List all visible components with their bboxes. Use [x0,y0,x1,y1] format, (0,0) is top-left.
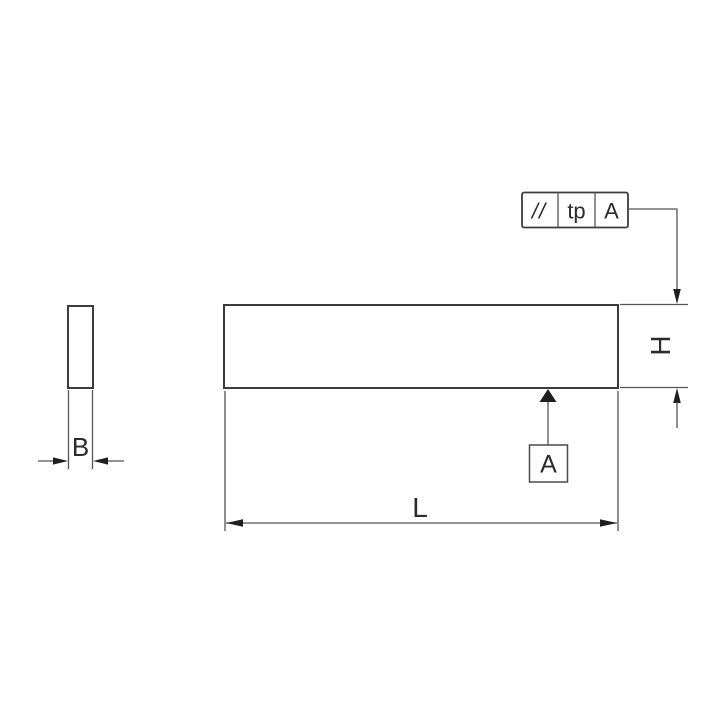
dim-b-label: B [72,432,89,462]
dim-h-arrowhead-bottom [673,388,681,403]
dim-h-label: H [645,335,676,355]
side-view-outline [68,306,93,388]
tolerance-leader-line [628,209,677,291]
front-view-outline [224,305,618,388]
parallelism-icon: // [530,199,547,224]
datum-label: A [540,451,557,479]
dim-b-arrowhead-right [93,457,108,464]
tolerance-leader-arrowhead [673,289,681,304]
dim-b-arrowhead-left [53,457,68,464]
dim-l-label: L [412,492,428,523]
dim-l-arrowhead-right [600,519,617,526]
technical-drawing: B // tp A H A L [0,0,720,720]
datum-triangle-icon [540,389,557,402]
tolerance-value-label: tp [567,199,585,224]
tolerance-datum-ref-label: A [604,199,619,224]
drawing-canvas: B // tp A H A L [0,0,720,720]
dim-l-arrowhead-left [226,519,243,526]
